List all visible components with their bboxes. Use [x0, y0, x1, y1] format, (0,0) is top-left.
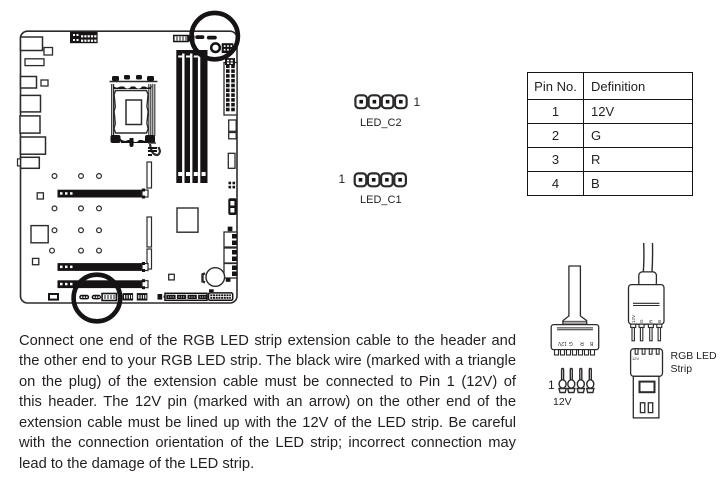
- svg-text:12V: 12V: [557, 340, 567, 346]
- svg-text:B: B: [657, 320, 662, 323]
- svg-text:G: G: [569, 340, 573, 346]
- svg-text:12V: 12V: [632, 356, 639, 361]
- svg-text:G: G: [639, 319, 644, 323]
- svg-text:R: R: [580, 340, 584, 346]
- svg-text:12V: 12V: [631, 314, 636, 323]
